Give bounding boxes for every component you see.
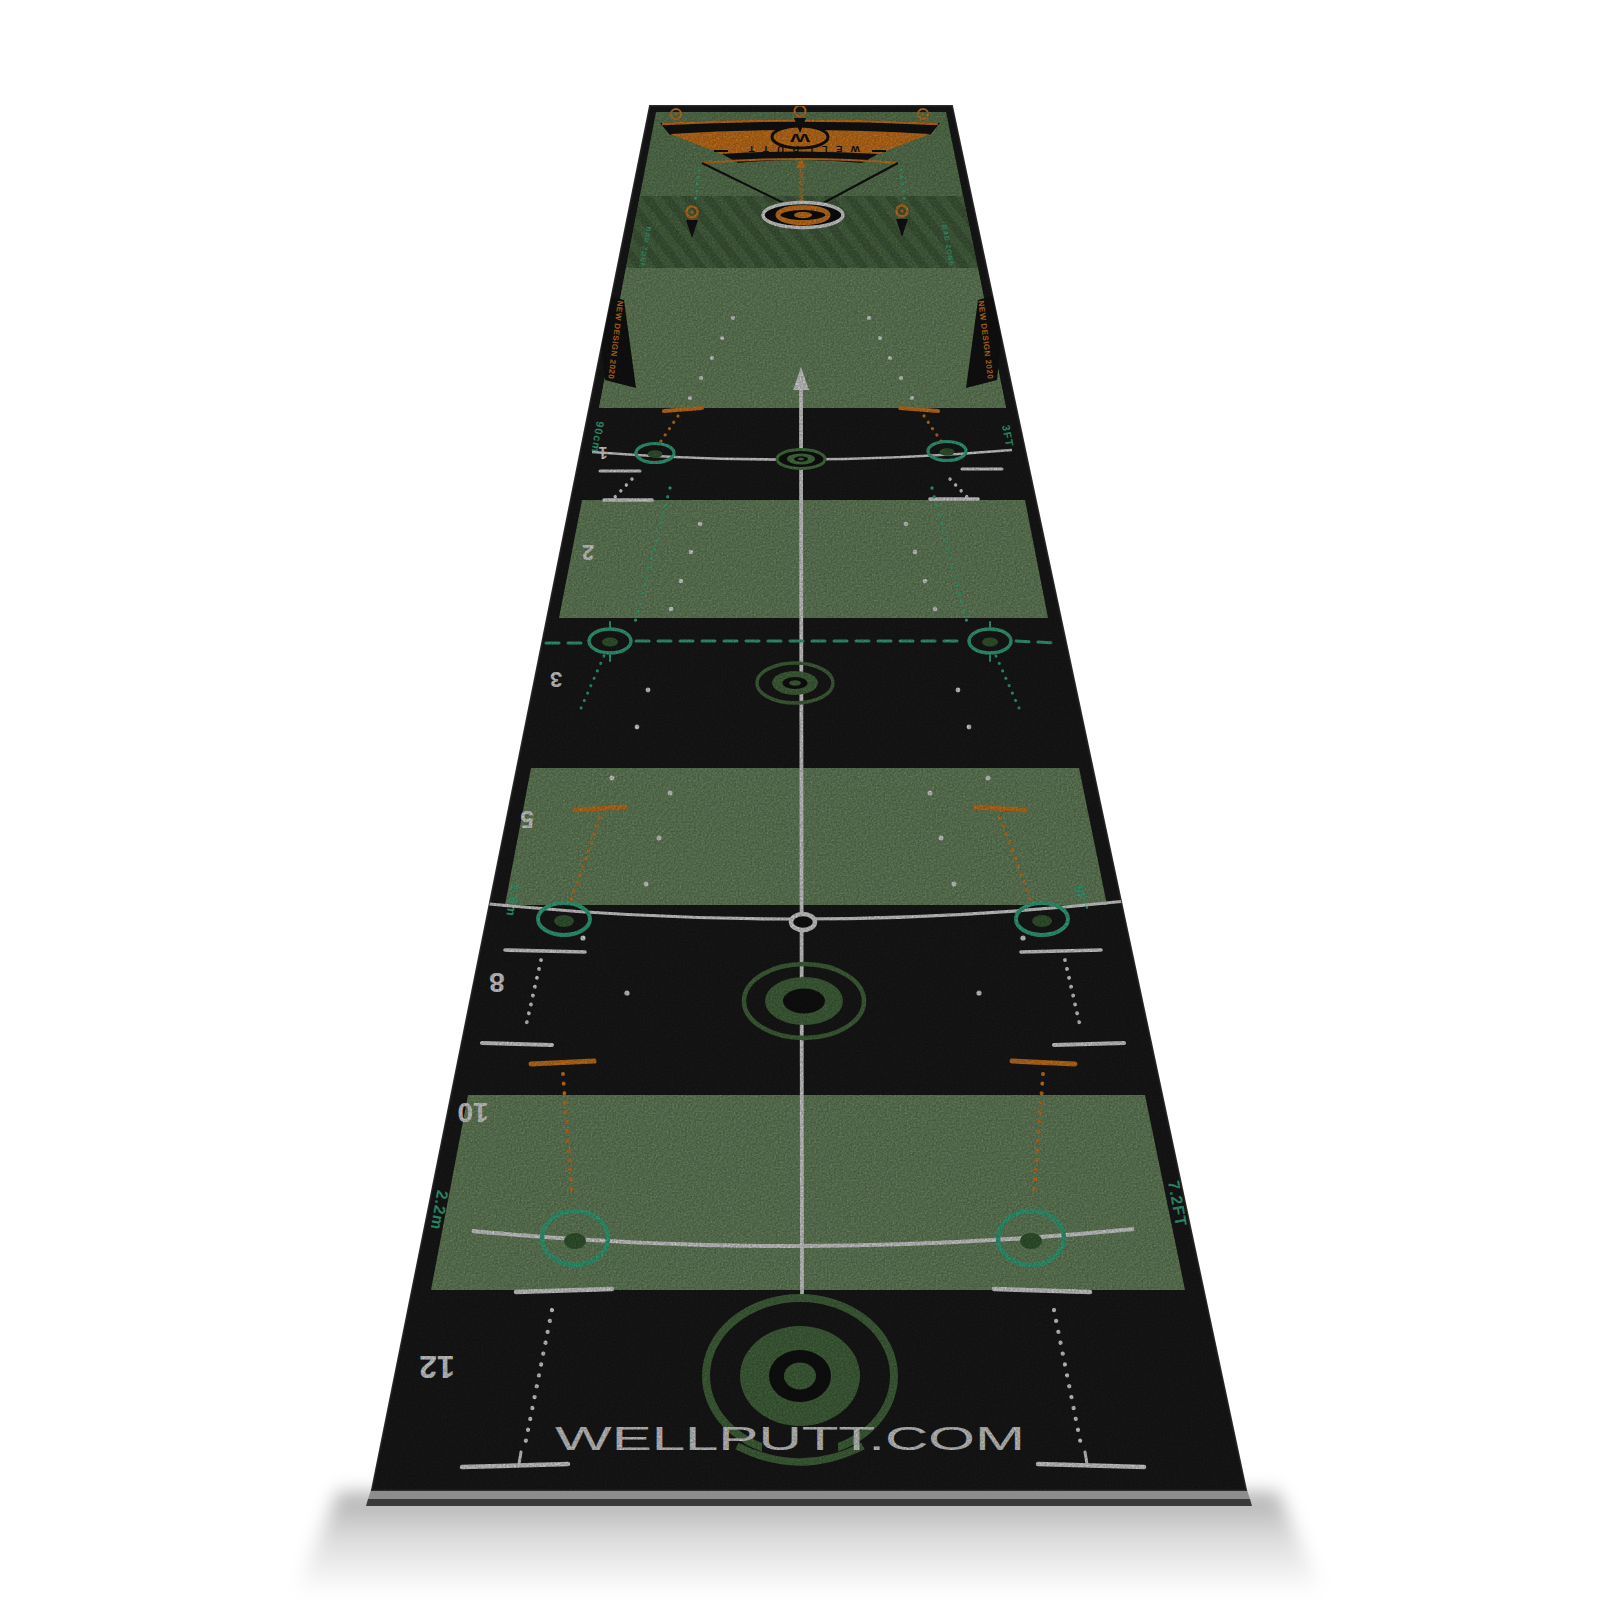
- putting-mat-product-image: W WELLPUTT GOOD ZONE: [0, 0, 1600, 1600]
- mat-edge: [366, 1490, 1252, 1506]
- mat-shadow: [296, 1492, 1322, 1592]
